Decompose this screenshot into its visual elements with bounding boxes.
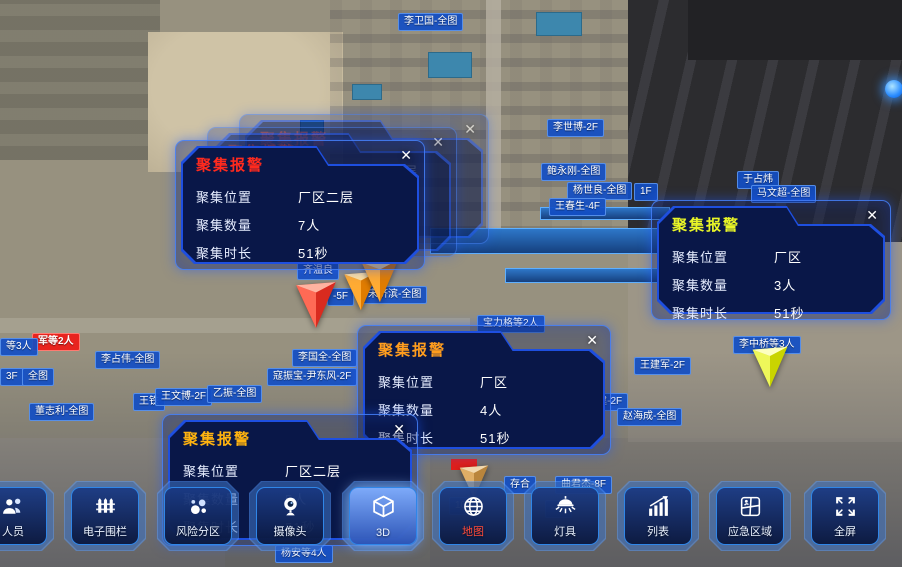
close-icon[interactable]: ✕ xyxy=(866,207,878,224)
toolbar-label: 摄像头 xyxy=(274,523,307,539)
toolbar-label: 全屏 xyxy=(834,523,856,539)
surveillance-map-screen: 李卫国-全图李世博-2F鲍永刚-全图杨世良-全图1F王春生-4F于占炜马文超-全… xyxy=(0,0,902,567)
field-label: 聚集数量 xyxy=(672,275,746,294)
people-icon xyxy=(1,494,26,519)
map-poi-dot[interactable] xyxy=(885,80,902,98)
fence-icon xyxy=(93,494,118,519)
field-value: 厂区 xyxy=(480,372,508,391)
toolbar-label: 列表 xyxy=(647,523,669,539)
field-label: 聚集位置 xyxy=(378,372,452,391)
toolbar-label: 3D xyxy=(376,527,390,539)
close-icon[interactable]: ✕ xyxy=(393,421,405,438)
field-label: 聚集位置 xyxy=(183,461,257,480)
toolbar-button-risk-zones[interactable]: 风险分区 xyxy=(157,481,239,551)
list-chart-icon xyxy=(646,494,671,519)
toolbar-label: 风险分区 xyxy=(176,523,220,539)
toolbar-button-3d[interactable]: 3D xyxy=(342,481,424,551)
close-icon[interactable]: ✕ xyxy=(464,121,476,138)
field-value: 厂区 xyxy=(774,247,802,266)
red-alarm-marker[interactable] xyxy=(291,280,341,335)
field-value: 51秒 xyxy=(298,243,328,262)
toolbar-label: 电子围栏 xyxy=(83,523,127,539)
field-label: 聚集位置 xyxy=(196,187,270,206)
alarm-popup-right: ✕ 聚集报警 聚集位置厂区 聚集数量3人 聚集时长51秒 xyxy=(651,200,891,320)
field-value: 4人 xyxy=(480,400,502,419)
field-value: 厂区二层 xyxy=(298,187,354,206)
toolbar-label: 应急区域 xyxy=(728,523,772,539)
popup-title: 聚集报警 xyxy=(183,428,251,449)
close-icon[interactable]: ✕ xyxy=(586,332,598,349)
camera-icon xyxy=(278,494,303,519)
popup-title: 聚集报警 xyxy=(672,214,740,235)
yellow-alarm-marker[interactable] xyxy=(748,345,792,394)
toolbar-label: 地图 xyxy=(462,523,484,539)
field-value: 51秒 xyxy=(774,303,804,322)
fullscreen-icon xyxy=(833,494,858,519)
lamp-icon xyxy=(553,494,578,519)
risk-zones-icon xyxy=(186,494,211,519)
toolbar-label: 人员 xyxy=(2,523,24,539)
field-label: 聚集时长 xyxy=(672,303,746,322)
popup-title: 聚集报警 xyxy=(378,339,446,360)
globe-icon xyxy=(461,494,486,519)
close-icon[interactable]: ✕ xyxy=(400,147,412,164)
toolbar-button-electronic-fence[interactable]: 电子围栏 xyxy=(64,481,146,551)
field-label: 聚集数量 xyxy=(196,215,270,234)
field-value: 7人 xyxy=(298,215,320,234)
close-icon[interactable]: ✕ xyxy=(432,134,444,151)
toolbar-button-camera[interactable]: 摄像头 xyxy=(249,481,331,551)
toolbar-label: 灯具 xyxy=(554,523,576,539)
field-value: 51秒 xyxy=(480,428,510,447)
field-label: 聚集时长 xyxy=(196,243,270,262)
toolbar-button-personnel[interactable]: 人员 xyxy=(0,481,54,551)
toolbar-button-emergency-area[interactable]: 应急区域 xyxy=(709,481,791,551)
field-value: 厂区二层 xyxy=(285,461,341,480)
alarm-popup-front-left: ✕ 聚集报警 聚集位置厂区二层 聚集数量7人 聚集时长51秒 xyxy=(175,140,425,270)
field-label: 聚集位置 xyxy=(672,247,746,266)
toolbar-button-lights[interactable]: 灯具 xyxy=(524,481,606,551)
emergency-area-icon xyxy=(738,494,763,519)
popup-title: 聚集报警 xyxy=(196,154,264,175)
toolbar-button-fullscreen[interactable]: 全屏 xyxy=(804,481,886,551)
toolbar-button-map[interactable]: 地图 xyxy=(432,481,514,551)
cube-3d-icon xyxy=(371,494,396,519)
field-value: 3人 xyxy=(774,275,796,294)
toolbar-button-list[interactable]: 列表 xyxy=(617,481,699,551)
